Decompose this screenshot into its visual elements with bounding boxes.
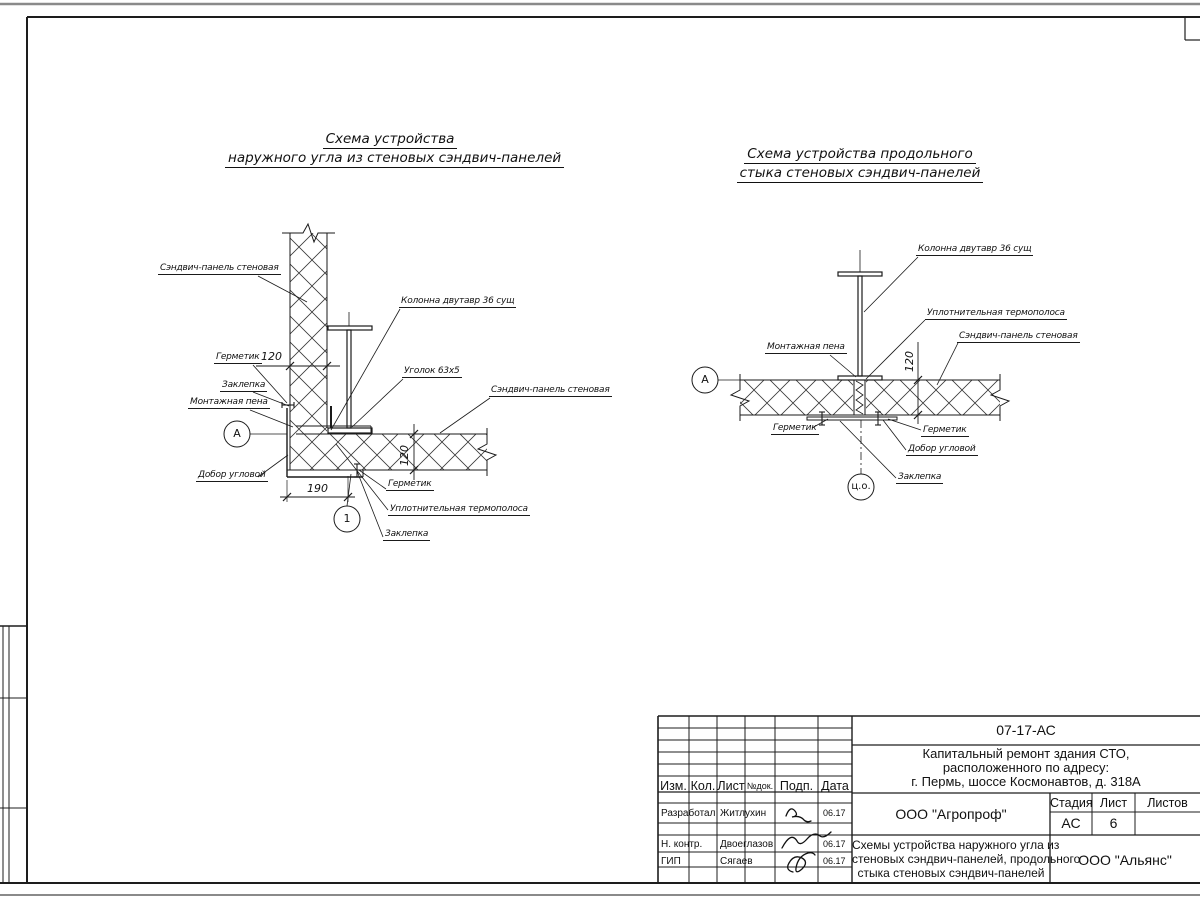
dim-120-right: 120 (904, 351, 915, 372)
col-header-ndok: №док. (745, 781, 775, 791)
role-ncontr: Н. контр. (661, 839, 702, 850)
label-sealant-bottom: Герметик (386, 479, 434, 491)
right-diagram-linework (692, 250, 1009, 500)
col-header-izm: Изм. (658, 779, 689, 793)
label-rivet-top: Заклепка (220, 380, 267, 392)
date-ncontr: 06.17 (823, 839, 846, 849)
date-gip: 06.17 (823, 856, 846, 866)
sheet-value: 6 (1092, 816, 1135, 830)
name-ncontr: Двоеглазов (720, 839, 773, 850)
label-mounting-foam-right: Монтажная пена (765, 342, 847, 354)
label-rivet-right: Заклепка (896, 472, 943, 484)
label-sandwich-panel-wall-2: Сэндвич-панель стеновая (489, 385, 612, 397)
org-customer: ООО "Альянс" (1050, 853, 1200, 867)
sheets-label: Листов (1135, 796, 1200, 810)
project-line3: г. Пермь, шоссе Космонавтов, д. 318А (852, 775, 1200, 789)
name-gip: Сягаев (720, 856, 753, 867)
col-header-list: Лист (717, 779, 745, 793)
role-gip: ГИП (661, 856, 681, 867)
sheet-title: Схемы устройства наружного угла из стено… (852, 838, 1050, 880)
col-header-data: Дата (818, 779, 852, 793)
label-sealant-left2: Герметик (771, 423, 819, 435)
project-line1: Капитальный ремонт здания СТО, (852, 747, 1200, 761)
sheet-title-line2: стеновых сэндвич-панелей, продольного (852, 852, 1050, 866)
dim-190: 190 (307, 483, 328, 494)
col-header-podp: Подп. (775, 779, 818, 793)
label-mounting-foam-left: Монтажная пена (188, 397, 270, 409)
col-header-kol: Кол. (689, 779, 717, 793)
left-diagram-title: Схема устройства наружного угла из стено… (225, 130, 555, 168)
org-design: ООО "Агропроф" (852, 807, 1050, 821)
right-diagram-title: Схема устройства продольного стыка стено… (700, 145, 1020, 183)
label-thermo-strip-left: Уплотнительная термополоса (388, 504, 530, 516)
stage-label: Стадия (1050, 796, 1092, 810)
doc-number: 07-17-АС (852, 723, 1200, 737)
left-title-line2: наружного угла из стеновых сэндвич-панел… (225, 150, 564, 168)
label-corner-trim-left: Добор угловой (196, 470, 268, 482)
label-sealant-top: Герметик (214, 352, 262, 364)
sheet-title-line1: Схемы устройства наружного угла из (852, 838, 1050, 852)
label-sealant-right2: Герметик (921, 425, 969, 437)
label-corner-trim-right: Добор угловой (906, 444, 978, 456)
node-mark-1: 1 (337, 512, 357, 525)
center-mark: ц.о. (849, 481, 873, 492)
label-rivet-bottom: Заклепка (383, 529, 430, 541)
axis-mark-a-left: А (227, 427, 247, 440)
role-developed: Разработал (661, 808, 715, 819)
drawing-sheet: Схема устройства наружного угла из стено… (0, 0, 1200, 900)
right-title-line1: Схема устройства продольного (744, 146, 975, 164)
stage-value: АС (1050, 816, 1092, 830)
label-angle-63x5: Уголок 63х5 (402, 366, 462, 378)
label-thermo-strip-right: Уплотнительная термополоса (925, 308, 1067, 320)
dim-120-top: 120 (261, 351, 282, 362)
sheet-label: Лист (1092, 796, 1135, 810)
name-developed: Житлухин (720, 808, 766, 819)
label-sandwich-panel-right: Сэндвич-панель стеновая (957, 331, 1080, 343)
left-title-line1: Схема устройства (323, 131, 458, 149)
project-name: Капитальный ремонт здания СТО, расположе… (852, 747, 1200, 789)
label-column-right: Колонна двутавр 36 сущ (916, 244, 1033, 256)
label-column-left: Колонна двутавр 36 сущ (399, 296, 516, 308)
sheet-title-line3: стыка стеновых сэндвич-панелей (852, 866, 1050, 880)
axis-mark-a-right: А (695, 373, 715, 386)
date-developed: 06.17 (823, 808, 846, 818)
label-sandwich-panel-wall: Сэндвич-панель стеновая (158, 263, 281, 275)
project-line2: расположенного по адресу: (852, 761, 1200, 775)
left-filing-strip (0, 626, 27, 883)
dim-120-vertical-left: 120 (399, 445, 410, 466)
right-title-line2: стыка стеновых сэндвич-панелей (737, 165, 984, 183)
